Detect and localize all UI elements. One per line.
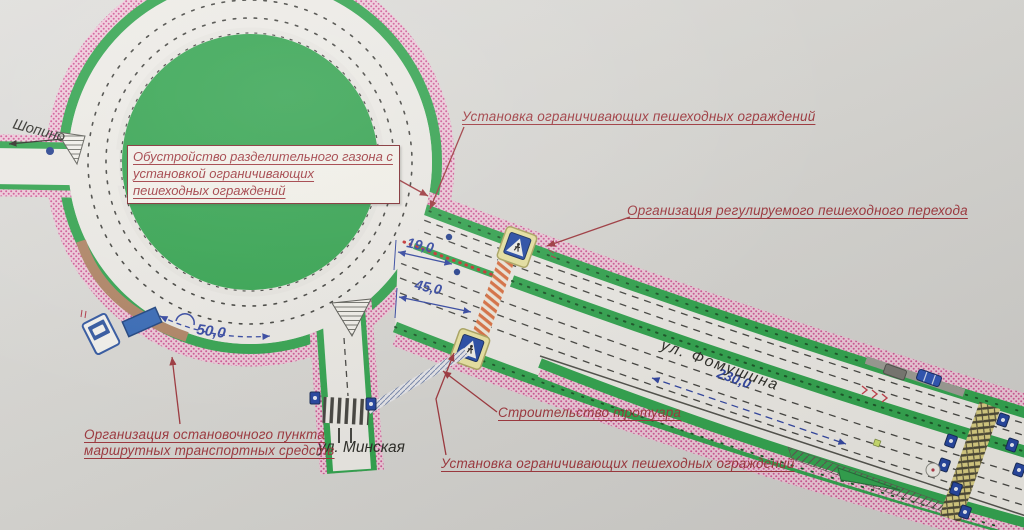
annotation-line: Организация остановочного пункта <box>84 427 335 443</box>
annotation-line: установкой ограничивающих <box>133 165 393 182</box>
annotation-line: Обустройство разделительного газона с <box>133 148 393 165</box>
annotation-fences-top: Установка ограничивающих пешеходных огра… <box>462 109 815 125</box>
bus-stop-sign-icon <box>82 313 121 355</box>
annotation-line: маршрутных транспортных средств <box>84 443 335 459</box>
traffic-scheme-photo: 19,0 45,0 50,0 230,0 Шопино ул. Минская … <box>0 0 1024 530</box>
annotation-median-box: Обустройство разделительного газона с ус… <box>127 145 400 204</box>
annotation-bus-stop: Организация остановочного пункта маршрут… <box>84 427 335 459</box>
annotation-regulated-crossing: Организация регулируемого пешеходного пе… <box>627 203 968 219</box>
zebra-crossing-minskaya <box>322 397 369 425</box>
annotation-line: пешеходных ограждений <box>133 182 393 199</box>
crossing-sign-icon <box>310 392 320 404</box>
crossing-sign-icon <box>366 398 376 410</box>
post-dot <box>46 147 54 155</box>
annotation-sidewalk: Строительство тротуара <box>498 405 681 421</box>
annotation-fences-bottom: Установка ограничивающих пешеходных огра… <box>441 456 794 472</box>
